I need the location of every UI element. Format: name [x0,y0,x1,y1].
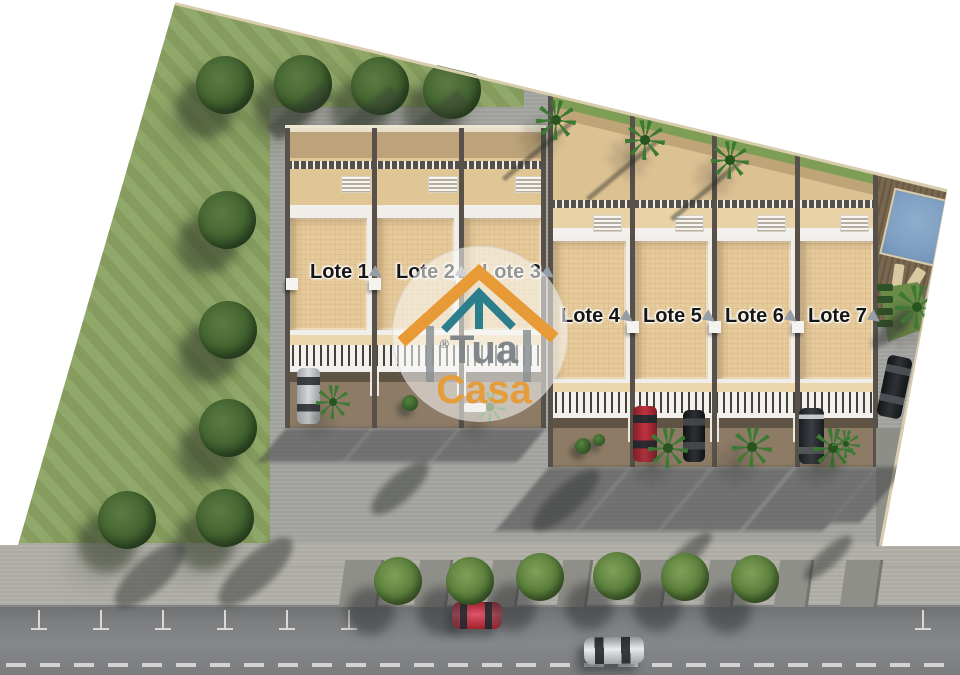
wall-cap [627,321,639,333]
logo-house-icon: ® Tua Casa [392,246,568,422]
palm-tree [711,141,749,179]
tree [98,491,156,549]
street-tree [374,557,422,605]
palm-tree [832,430,860,458]
parking-line [224,610,226,630]
hedge [877,284,893,291]
palm-tree [648,428,688,468]
wall-cap [709,321,721,333]
tree [199,301,257,359]
street-tree [661,553,709,601]
parking-line [162,610,164,630]
wall-cap [369,278,381,290]
hedge [877,308,893,315]
palm-tree [316,385,350,419]
lane-dashed-line [6,663,956,667]
deck-stairs [757,215,786,232]
palm-tree [536,100,576,140]
watermark-logo: ® Tua Casa [392,246,568,422]
tree [196,56,254,114]
deck-stairs [840,215,869,232]
parking-line [100,610,102,630]
tree [196,489,254,547]
lot-label-7: Lote 7 [808,305,867,328]
wall-cap [286,278,298,290]
logo-roof-stem [475,296,483,329]
logo-left-post [426,326,434,382]
backyard-band [285,128,546,213]
site-plan-canvas: Lote 1 Lote 2 Lote 3 Lote 4 Lote 5 Lote … [0,0,960,675]
deck-stairs [428,176,458,193]
street-car-red [452,602,502,629]
palm-tree [732,427,772,467]
parking-line [922,610,924,630]
lot-label-1: Lote 1 [310,261,369,284]
deck-stairs [341,176,371,193]
parking-line [38,610,40,630]
logo-registered-mark: ® [440,337,449,351]
street-tree [593,552,641,600]
street-tree [446,557,494,605]
parking-line [286,610,288,630]
palm-tree [625,120,665,160]
driveway-slab [840,560,884,607]
deck-stairs [593,215,622,232]
hedge [877,296,893,303]
parking-line [348,610,350,630]
wall-cap [792,321,804,333]
logo-brand-line2: Casa [436,368,532,412]
bush [575,438,591,454]
street-car-silver [584,636,644,664]
lot-label-4: Lote 4 [561,305,620,328]
tree [198,191,256,249]
logo-brand-line1: Tua [450,328,519,372]
tree [199,399,257,457]
street-tree [516,553,564,601]
deck-stairs [675,215,704,232]
street-tree [731,555,779,603]
bush [593,434,605,446]
lot-label-5: Lote 5 [643,305,702,328]
lot-label-6: Lote 6 [725,305,784,328]
backyard-fence [285,161,546,169]
